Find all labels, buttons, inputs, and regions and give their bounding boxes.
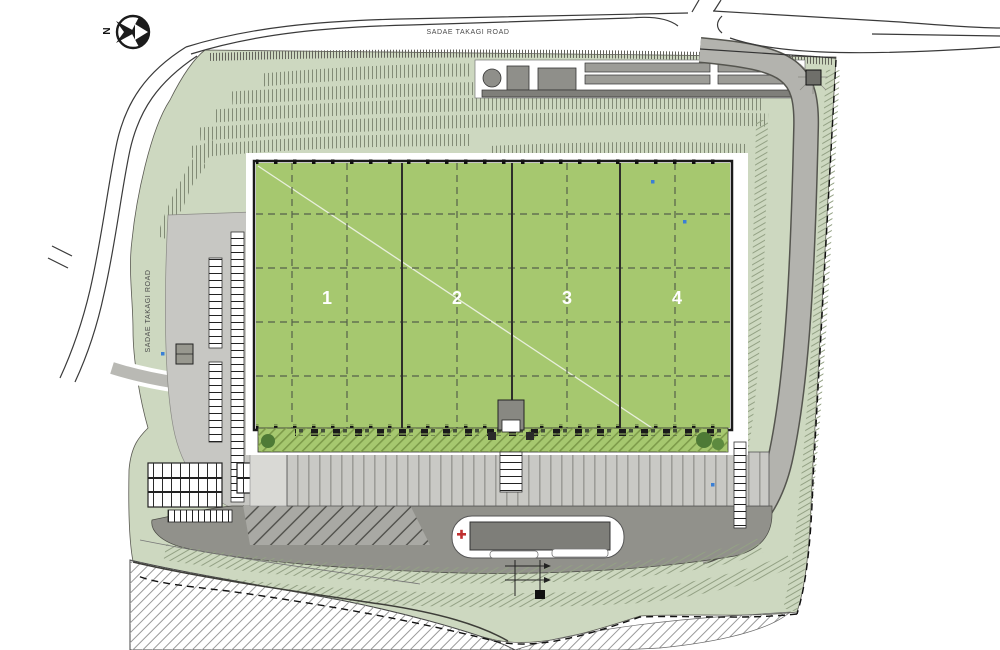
tree: [261, 434, 275, 448]
canopy-structure: [470, 522, 610, 550]
north-label: N: [102, 27, 113, 34]
top-road-label: SADAE TAKAGI ROAD: [426, 29, 509, 36]
unit-label-4: 4: [672, 288, 682, 308]
column-ticks-top: [256, 159, 730, 164]
unit-label-3: 3: [562, 288, 572, 308]
unit-label-2: 2: [452, 288, 462, 308]
flag-marker: [535, 590, 545, 599]
tree: [696, 432, 712, 448]
tank-structure: [483, 69, 501, 87]
unit-label-1: 1: [322, 288, 332, 308]
truck-dock-stalls: [287, 452, 769, 506]
site-plan: SADAE TAKAGI ROAD SADAE TAKAGI ROAD N 1 …: [0, 0, 1000, 650]
side-stair-ladders: [734, 442, 746, 528]
left-road-label: SADAE TAKAGI ROAD: [145, 269, 152, 352]
tree: [712, 438, 724, 450]
north-arrow-icon: [116, 16, 149, 48]
